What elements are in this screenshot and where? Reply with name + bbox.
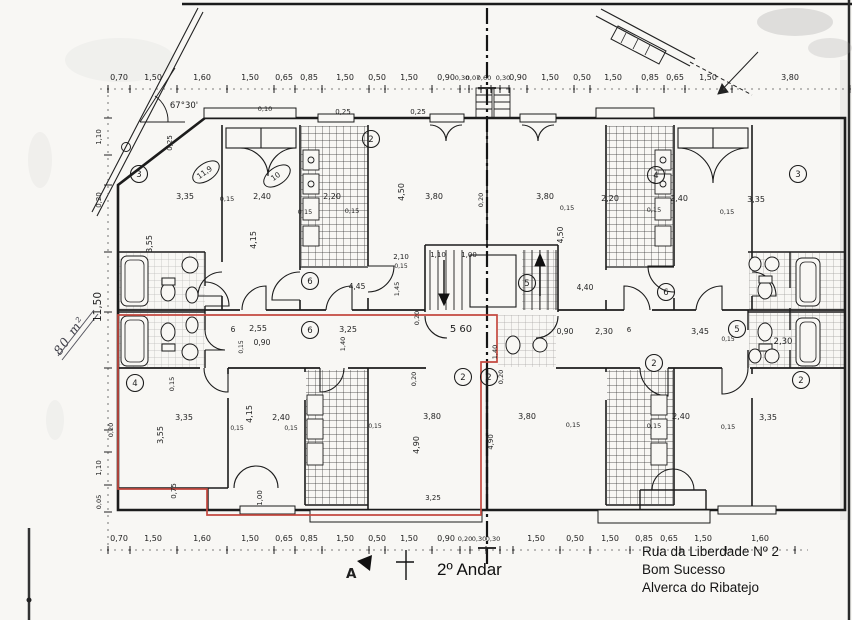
chain-dim-label: 1,50 <box>601 534 619 543</box>
dim-label: 0,20 <box>477 193 485 207</box>
dim-label: 4,90 <box>487 434 495 450</box>
dim-label: 0,90 <box>254 338 271 347</box>
dim-label: 0,15 <box>230 425 244 432</box>
dim-label: 0,15 <box>720 208 734 216</box>
tick-dot <box>512 549 514 551</box>
dim-label: 2,20 <box>601 194 619 203</box>
chain-dim-label: 1,50 <box>527 534 545 543</box>
room-tag-number: 6 <box>307 326 312 336</box>
tick-dot <box>636 88 638 90</box>
tick-dot <box>294 88 296 90</box>
tick-dot <box>368 88 370 90</box>
room-tag-number: 2 <box>798 376 803 386</box>
dim-label: 1,40 <box>339 337 347 351</box>
dim-label: 2,10 <box>393 253 409 261</box>
dim-label: 1,00 <box>461 251 477 259</box>
dim-label: 0,20 <box>413 311 421 325</box>
chain-dim-label: 0,90 <box>437 73 455 82</box>
tick-dot <box>384 549 386 551</box>
dim-label: 4,40 <box>577 283 594 292</box>
tick-dot <box>794 549 796 551</box>
chain-dim-label: 0,65 <box>666 73 684 82</box>
tick-dot <box>431 88 433 90</box>
dim-label: 2,40 <box>253 192 271 201</box>
chain-dim-label: 1,50 <box>241 534 259 543</box>
chain-dim-label: 1,60 <box>751 534 769 543</box>
chain-dim-label: 1,50 <box>336 73 354 82</box>
dim-label: 3,80 <box>518 412 536 421</box>
chain-dim-label: 1,50 <box>400 534 418 543</box>
chain-dim-label: 1,10 <box>95 460 103 476</box>
room-tag-number: 4 <box>132 379 137 389</box>
dim-label: 4,15 <box>249 231 258 249</box>
dim-label: 0,25 <box>335 108 351 116</box>
dim-label: 0,15 <box>168 377 176 391</box>
chain-dim-label: 1,50 <box>400 73 418 82</box>
chain-dim-label: 3,80 <box>781 73 799 82</box>
tick-dot <box>107 549 109 551</box>
dim-label: 5 60 <box>450 324 472 335</box>
chain-dim-label: 0,05 <box>95 495 103 509</box>
dim-label: 1,10 <box>430 251 446 259</box>
room-tag-number: 6 <box>663 288 668 298</box>
chain-dim-label: 0,50 <box>566 534 584 543</box>
dim-label: 3,55 <box>145 235 154 253</box>
chain-dim-label: 0,90 <box>509 73 527 82</box>
dim-label: 2,40 <box>672 412 690 421</box>
room-tag-number: 4 <box>653 171 658 181</box>
chain-dim-label: 0,60 <box>477 74 491 82</box>
chain-dim-label: 1,50 <box>144 534 162 543</box>
tick-dot <box>226 88 228 90</box>
dim-label: 3,35 <box>759 413 777 422</box>
dim-label: 2,30 <box>595 327 613 336</box>
scanned-floor-plan-page: 80 m² A 0,701,501,601,500,650,851,500,50… <box>0 0 852 620</box>
tick-dot <box>468 88 470 90</box>
dim-label: 4,50 <box>556 226 565 243</box>
chain-dim-label: 0,65 <box>275 73 293 82</box>
section-arrow-icon <box>357 555 372 571</box>
chain-dim-label: 0,70 <box>110 534 128 543</box>
tick-dot <box>508 88 510 90</box>
tick-dot <box>526 88 528 90</box>
dim-label: 4,15 <box>245 405 254 423</box>
dim-label: 2,30 <box>774 337 793 347</box>
dim-label: 0,25 <box>166 135 174 151</box>
dim-label: 67°30' <box>170 101 198 111</box>
chain-dim-label: 1,50 <box>541 73 559 82</box>
dim-label: 0,15 <box>220 195 234 203</box>
dim-label: 0,15 <box>560 204 574 212</box>
tick-dot <box>176 88 178 90</box>
room-tag-number: 5 <box>734 325 739 335</box>
dim-label: 0,15 <box>298 208 312 216</box>
chain-dim-label: 0,65 <box>275 534 293 543</box>
room-tag-number: 3 <box>795 170 800 180</box>
tick-dot <box>559 549 561 551</box>
dim-label: 0,15 <box>368 423 382 430</box>
tick-dot <box>129 549 131 551</box>
chain-dim-label: 1,50 <box>144 73 162 82</box>
dim-label: 3,25 <box>425 494 441 502</box>
chain-dim-label: 1,50 <box>694 534 712 543</box>
dim-label: 2,55 <box>249 324 267 333</box>
tick-dot <box>129 88 131 90</box>
dim-label: 3,45 <box>691 327 709 336</box>
chain-dim-label: 1,50 <box>241 73 259 82</box>
tick-dot <box>273 88 275 90</box>
dim-label: 0,20 <box>410 372 418 386</box>
dim-label: 1,40 <box>491 345 499 359</box>
dim-label: 0,15 <box>394 263 408 270</box>
dim-label: 0,75 <box>170 483 178 499</box>
chain-dim-label: 0,85 <box>635 534 653 543</box>
chain-dim-label: 0,85 <box>641 73 659 82</box>
tick-dot <box>368 549 370 551</box>
chain-dim-label: 0,70 <box>110 73 128 82</box>
room-number-tags: 32436566542222 <box>127 131 810 392</box>
address-line-3: Alverca do Ribatejo <box>642 579 779 597</box>
dim-label: 0,15 <box>647 422 661 430</box>
chain-dim-label: 1,50 <box>699 73 717 82</box>
dim-label: 0,25 <box>410 108 426 116</box>
floor-plan-drawing: 80 m² A 0,701,501,601,500,650,851,500,50… <box>0 0 852 620</box>
tick-dot <box>684 88 686 90</box>
tick-dot <box>431 549 433 551</box>
address-line-1: Rua da Liberdade Nº 2 <box>642 543 779 561</box>
dim-label: 4,50 <box>397 183 406 201</box>
tick-dot <box>485 549 487 551</box>
room-tag-number: 2 <box>651 359 656 369</box>
chain-dim-label: 1,50 <box>336 534 354 543</box>
chain-dim-label: 1,60 <box>193 73 211 82</box>
chain-dim-label: 0,65 <box>660 534 678 543</box>
address-block: Rua da Liberdade Nº 2 Bom Sucesso Alverc… <box>642 543 779 597</box>
tick-dot <box>731 88 733 90</box>
room-tag-number: 5 <box>524 279 529 289</box>
tick-dot <box>107 88 109 90</box>
dim-label: 3,35 <box>175 413 193 422</box>
chain-dim-label: 0,85 <box>300 534 318 543</box>
tick-dot <box>384 88 386 90</box>
tick-dot <box>589 549 591 551</box>
room-tag-number: 2 <box>460 373 465 383</box>
tick-dot <box>469 549 471 551</box>
dim-label: 3,55 <box>156 426 165 444</box>
chain-dim-label: 1,10 <box>95 129 103 145</box>
dim-label: 0,15 <box>721 423 735 431</box>
chain-dim-label: 0,50 <box>368 534 386 543</box>
area-tag-value: 10 <box>269 170 282 183</box>
floor-title: 2º Andar <box>437 560 502 580</box>
chain-dim-label: 0,30 <box>472 535 486 543</box>
dim-label: 0,20 <box>497 370 505 384</box>
room-tag-number: 3 <box>136 170 141 180</box>
chain-dim-label: 1,60 <box>193 534 211 543</box>
tick-dot <box>490 88 492 90</box>
dim-label: 3,80 <box>536 192 554 201</box>
tick-dot <box>573 88 575 90</box>
room-tag-number: 2 <box>368 135 373 145</box>
dim-label: 6 <box>231 325 236 334</box>
tick-dot <box>663 88 665 90</box>
dim-label: 0,20 <box>107 423 115 437</box>
dim-label: 3,35 <box>176 192 194 201</box>
address-line-2: Bom Sucesso <box>642 561 779 579</box>
tick-dot <box>459 88 461 90</box>
dim-label: 1,45 <box>393 282 401 296</box>
handwritten-area-note: 80 m² <box>50 310 98 360</box>
chain-dim-label: 0,30 <box>486 535 500 543</box>
dimension-chain-labels: 0,701,501,601,500,650,851,500,501,500,90… <box>92 73 851 554</box>
tick-dot <box>849 88 851 90</box>
annex-top-right <box>596 9 758 95</box>
section-marker-letter: A <box>346 566 357 582</box>
chain-dim-label: 11,50 <box>92 292 104 322</box>
dim-label: 0,15 <box>284 425 298 432</box>
dim-label: 4,90 <box>412 436 421 454</box>
dim-label: 3,80 <box>425 192 443 201</box>
dim-label: 3,25 <box>339 325 357 334</box>
chain-dim-label: 0,20 <box>95 192 103 208</box>
dim-label: 3,35 <box>747 195 765 204</box>
tick-dot <box>273 549 275 551</box>
dim-label: 2,40 <box>670 194 688 203</box>
room-tag-number: 6 <box>307 277 312 287</box>
tick-dot <box>294 549 296 551</box>
tick-dot <box>459 549 461 551</box>
tick-dot <box>226 549 228 551</box>
room-area-tags: 11,910 <box>189 156 294 191</box>
room-tag-number: 2 <box>486 373 491 383</box>
chain-dim-label: 0,20 <box>458 535 472 543</box>
chain-dim-label: 1,50 <box>604 73 622 82</box>
tick-dot <box>176 549 178 551</box>
dim-label: 0,15 <box>345 207 359 215</box>
section-marker: A <box>346 550 414 582</box>
tick-dot <box>321 88 323 90</box>
tick-dot <box>480 88 482 90</box>
dim-label: 2,20 <box>323 192 341 201</box>
dim-label: 3,80 <box>423 412 441 421</box>
tick-dot <box>499 549 501 551</box>
dim-label: 0,15 <box>566 421 580 429</box>
chain-dim-label: 0,85 <box>300 73 318 82</box>
interior-dimension-labels: 3,350,152,400,153,554,152,200,154,503,80… <box>107 101 792 506</box>
dim-label: 6 <box>627 326 632 334</box>
dim-label: 0,15 <box>238 340 245 354</box>
dim-label: 0,15 <box>721 336 735 343</box>
chain-dim-label: 0,50 <box>573 73 591 82</box>
tick-dot <box>499 88 501 90</box>
chain-dim-label: 0,50 <box>368 73 386 82</box>
tick-dot <box>629 549 631 551</box>
dim-label: 4,45 <box>349 282 366 291</box>
dim-label: 0,10 <box>258 105 272 113</box>
dimension-chain-lines <box>100 89 848 550</box>
tick-dot <box>321 549 323 551</box>
dim-label: 2,40 <box>272 413 290 422</box>
chain-dim-label: 0,30 <box>496 74 510 82</box>
dim-label: 0,90 <box>557 327 574 336</box>
chain-dim-label: 0,90 <box>437 534 455 543</box>
dim-label: 0,15 <box>647 206 661 214</box>
tick-dot <box>589 88 591 90</box>
dim-label: 1,00 <box>256 490 264 506</box>
